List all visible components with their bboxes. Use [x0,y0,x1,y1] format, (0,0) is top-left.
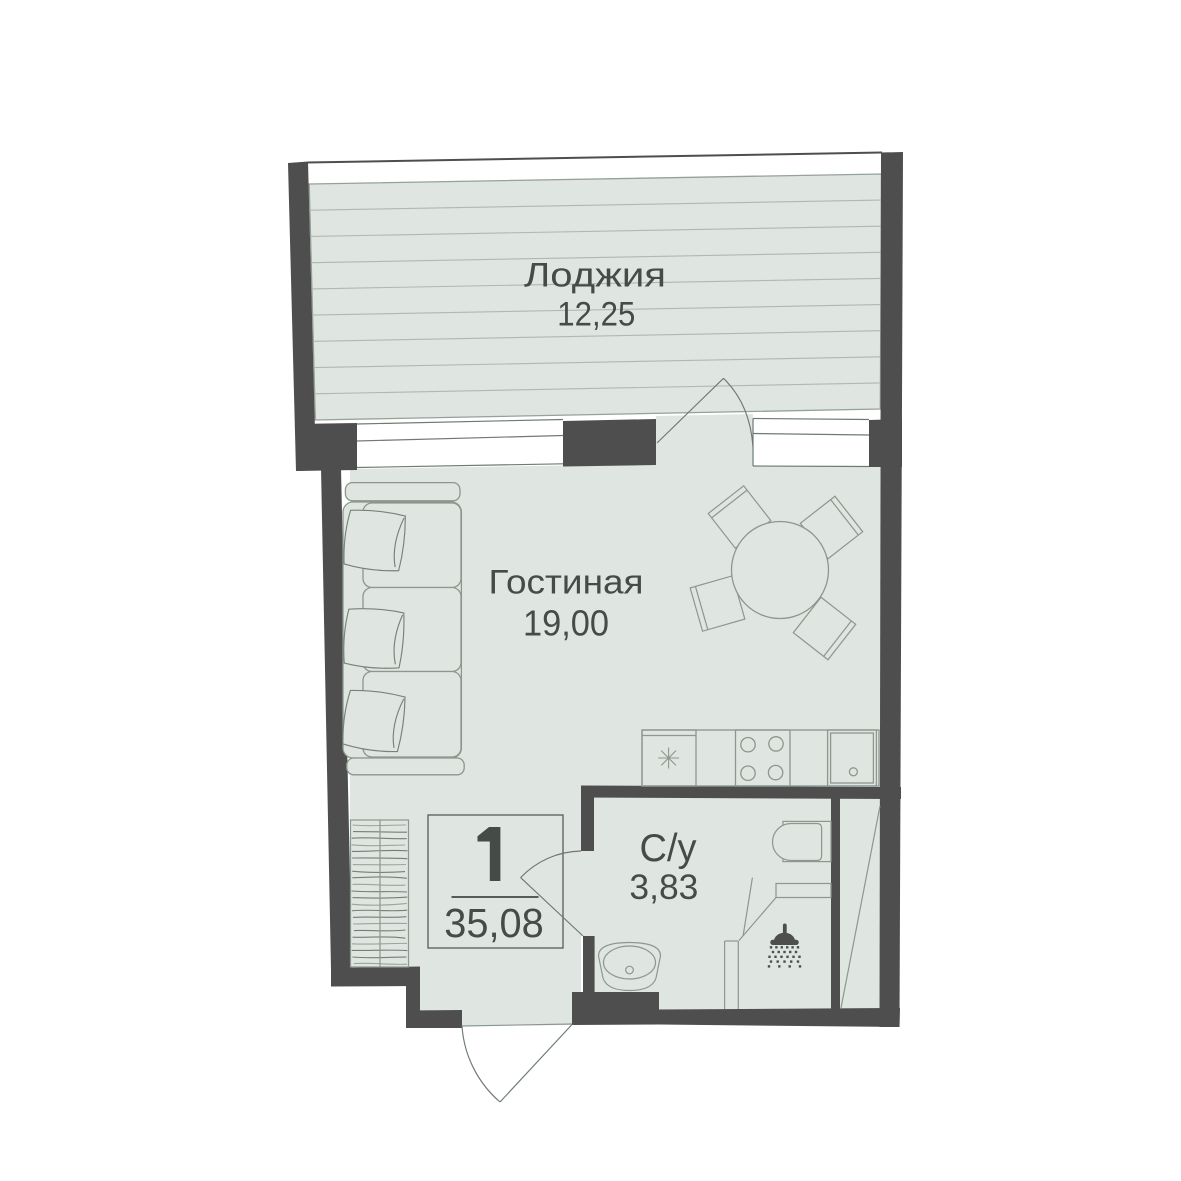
svg-text:3,83: 3,83 [629,868,698,907]
svg-text:Гостиная: Гостиная [489,564,644,602]
svg-text:Лоджия: Лоджия [524,257,666,295]
svg-text:С/у: С/у [640,827,698,870]
svg-text:19,00: 19,00 [523,603,609,644]
svg-text:12,25: 12,25 [557,296,635,334]
svg-text:35,08: 35,08 [444,900,544,946]
